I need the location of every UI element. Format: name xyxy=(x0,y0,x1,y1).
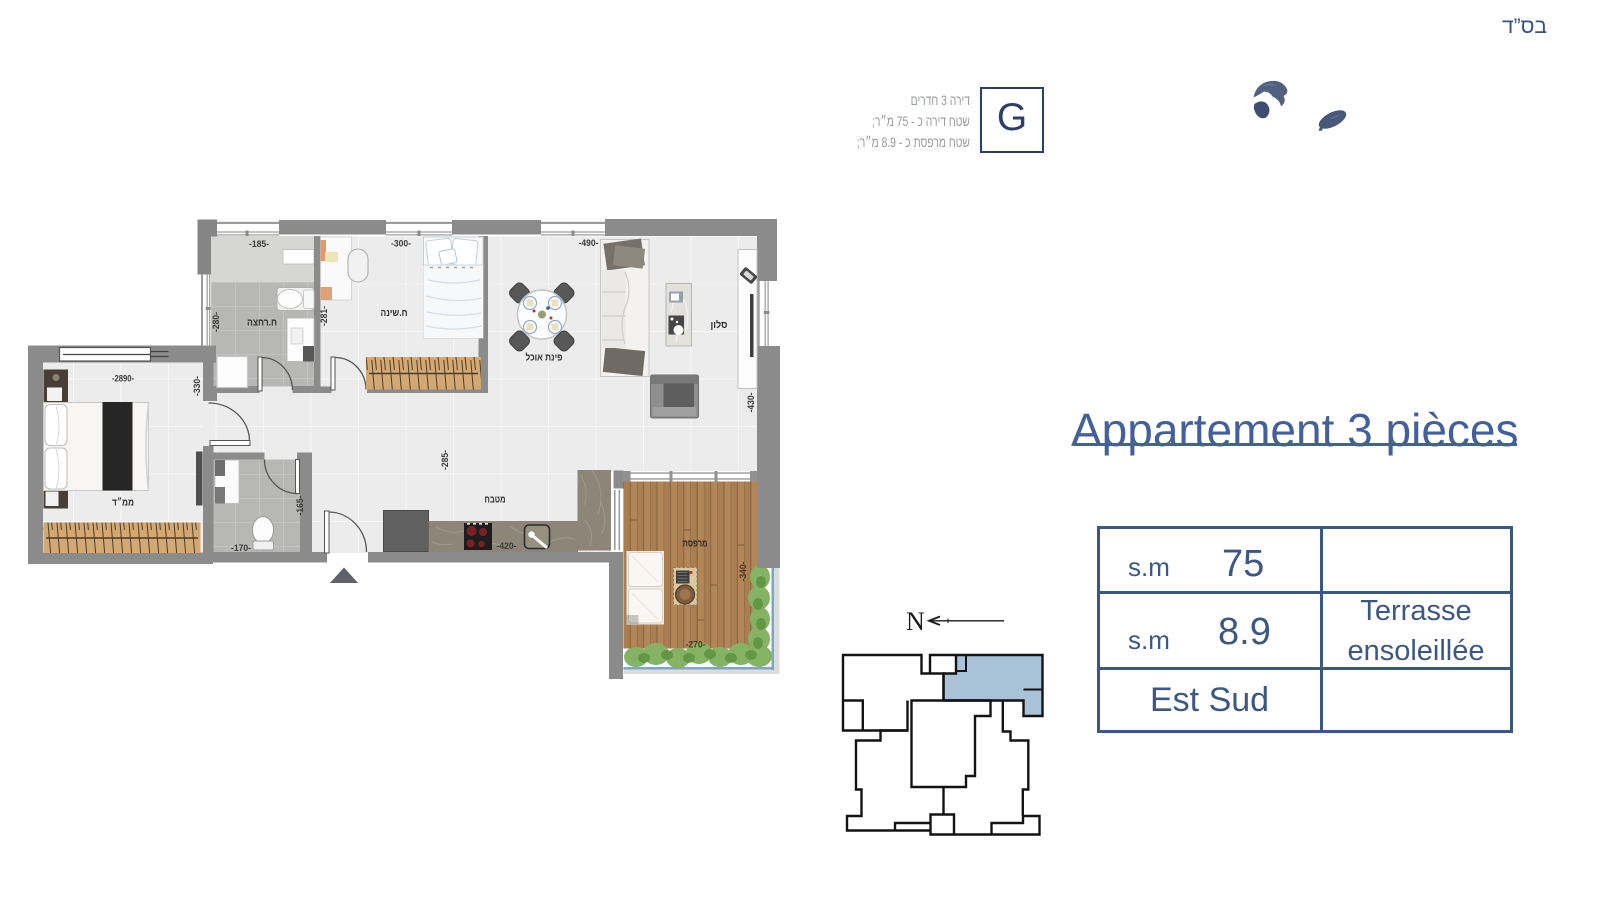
svg-text:-185-: -185- xyxy=(249,239,269,249)
svg-text:סלון: סלון xyxy=(711,319,728,331)
svg-text:פינת אוכל: פינת אוכל xyxy=(526,352,563,364)
svg-text:ח.שינה: ח.שינה xyxy=(381,308,408,319)
svg-text:-2890-: -2890- xyxy=(112,374,134,384)
svg-text:ממ״ד: ממ״ד xyxy=(112,497,134,509)
svg-text:-490-: -490- xyxy=(579,238,599,248)
svg-text:-165-: -165- xyxy=(295,496,305,516)
svg-text:-420-: -420- xyxy=(497,541,517,551)
svg-text:N: N xyxy=(906,607,925,636)
svg-text:-270-: -270- xyxy=(686,640,706,650)
svg-text:-280-: -280- xyxy=(211,312,221,332)
svg-text:-330-: -330- xyxy=(192,376,202,396)
svg-text:-170-: -170- xyxy=(231,543,251,553)
svg-text:-340-: -340- xyxy=(738,562,748,582)
svg-text:-285-: -285- xyxy=(440,450,450,470)
svg-text:-300-: -300- xyxy=(391,239,411,249)
svg-text:-281-: -281- xyxy=(319,306,329,326)
svg-text:מרפסת: מרפסת xyxy=(683,539,708,550)
svg-text:מטבח: מטבח xyxy=(485,495,506,506)
svg-text:ח.רחצה: ח.רחצה xyxy=(247,318,277,329)
svg-text:-430-: -430- xyxy=(746,393,756,413)
